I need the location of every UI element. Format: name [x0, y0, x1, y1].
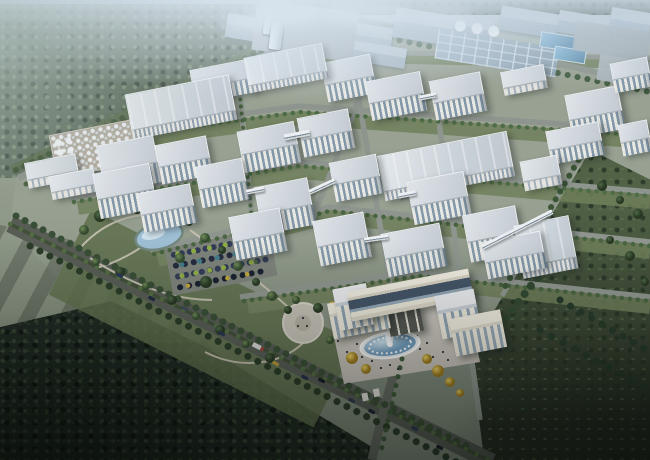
- steam-plume: [320, 0, 410, 24]
- steam-plume: [415, 6, 475, 22]
- aerial-industrial-park-rendering: [0, 0, 650, 460]
- steam-plume: [225, 14, 275, 30]
- office-building: [617, 119, 650, 156]
- office-building: [312, 211, 372, 266]
- office-building: [194, 158, 249, 208]
